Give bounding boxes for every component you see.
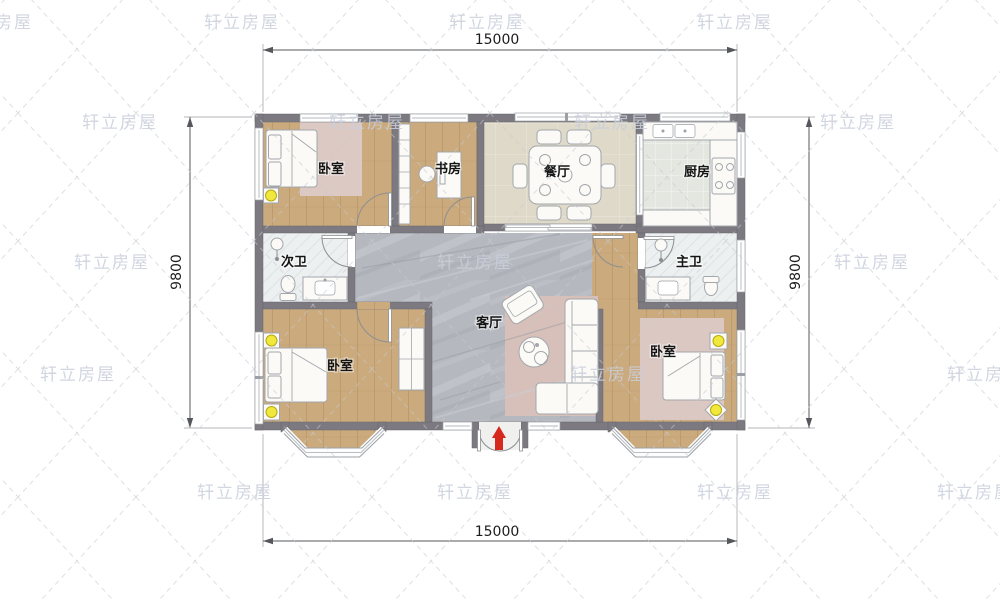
watermark-text: 轩立房屋 <box>449 13 525 32</box>
watermark-text: 轩立房屋 <box>937 483 1000 502</box>
watermark-text: 轩立房屋 <box>0 13 33 32</box>
floor-plan-canvas: 卧室 书房 餐厅 厨房 次卫 主卫 客厅 卧室 卧室 15000 15000 9… <box>0 0 1000 600</box>
watermark-text: 轩立房屋 <box>437 483 513 502</box>
watermark-text: 轩立房屋 <box>82 113 158 132</box>
watermark-text: 轩立房屋 <box>820 113 896 132</box>
watermark-text: 轩立房屋 <box>574 113 650 132</box>
watermark-text: 轩立房屋 <box>834 253 910 272</box>
watermark-text: 轩立房屋 <box>697 13 773 32</box>
watermark-text: 轩立房屋 <box>197 483 273 502</box>
watermark-text: 轩立房屋 <box>697 483 773 502</box>
watermark-text: 轩立房屋 <box>329 113 405 132</box>
watermark-text: 轩立房屋 <box>437 253 513 272</box>
watermark-text: 轩立房屋 <box>204 13 280 32</box>
watermark-text: 轩立房屋 <box>40 365 116 384</box>
watermark-lattice <box>0 0 1000 600</box>
watermark-text: 轩立房屋 <box>570 365 646 384</box>
watermark-text: 轩立房屋 <box>947 365 1000 384</box>
floor-plan-image: 卧室 书房 餐厅 厨房 次卫 主卫 客厅 卧室 卧室 15000 15000 9… <box>0 0 1000 600</box>
watermark-text: 轩立房屋 <box>74 253 150 272</box>
